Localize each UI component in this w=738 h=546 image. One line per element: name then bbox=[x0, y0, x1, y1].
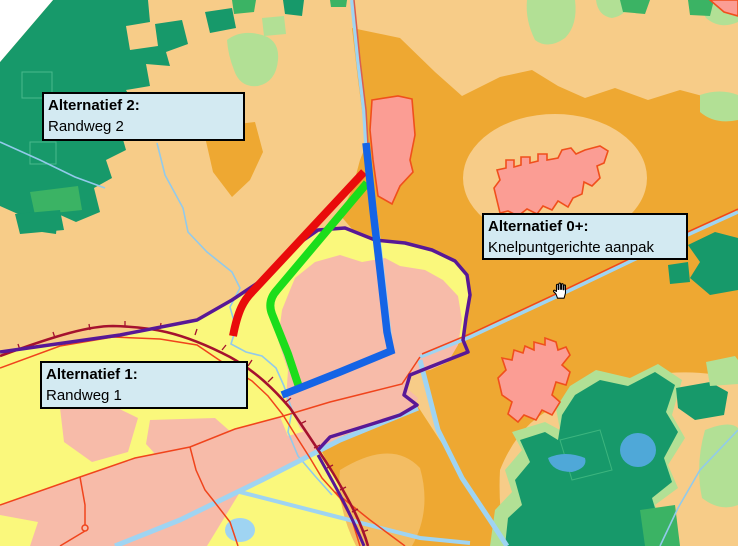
annotation-alternatief-2: Alternatief 2: Randweg 2 bbox=[42, 92, 245, 141]
forest-piece-3 bbox=[283, 0, 304, 16]
forest-right-small bbox=[668, 262, 690, 284]
forest-piece-7 bbox=[15, 210, 64, 234]
map-canvas[interactable] bbox=[0, 0, 738, 546]
forest-piece-5 bbox=[330, 0, 347, 7]
annotation-title: Alternatief 1: bbox=[46, 364, 242, 385]
annotation-title: Alternatief 2: bbox=[48, 95, 239, 116]
forest-piece-4 bbox=[262, 16, 286, 36]
annotation-alternatief-1: Alternatief 1: Randweg 1 bbox=[40, 361, 248, 409]
annotation-alternatief-0plus: Alternatief 0+: Knelpuntgerichte aanpak bbox=[482, 213, 688, 260]
forest-top-2 bbox=[688, 0, 714, 16]
annotation-subtitle: Knelpuntgerichte aanpak bbox=[488, 237, 682, 258]
annotation-subtitle: Randweg 2 bbox=[48, 116, 239, 137]
forest-piece-2 bbox=[232, 0, 256, 14]
lake-1 bbox=[620, 433, 656, 467]
annotation-subtitle: Randweg 1 bbox=[46, 385, 242, 406]
annotation-title: Alternatief 0+: bbox=[488, 216, 682, 237]
map-viewport[interactable]: Alternatief 2: Randweg 2 Alternatief 0+:… bbox=[0, 0, 738, 546]
forest-top-1 bbox=[620, 0, 650, 14]
open-hand-cursor-icon bbox=[551, 281, 570, 300]
forest-se-bottom bbox=[640, 505, 680, 546]
orange-mid-blob bbox=[339, 453, 424, 546]
